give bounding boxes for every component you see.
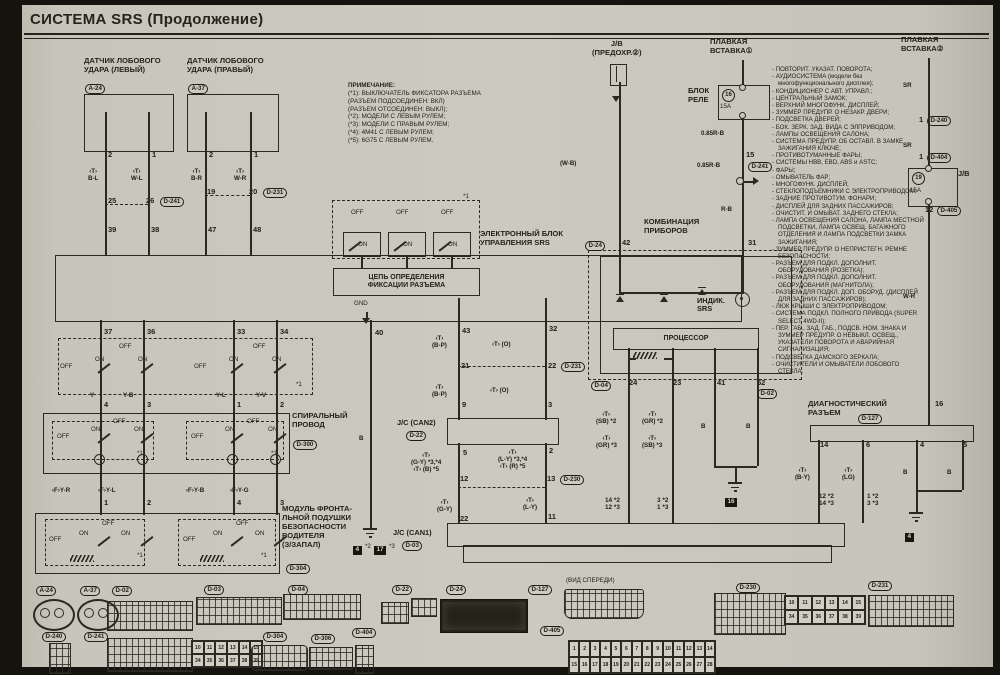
pin-cell: 11	[673, 641, 683, 657]
pin-cell: 17	[590, 657, 600, 673]
connector-pictogram-d230-pins: 101112131415343536373839	[784, 595, 866, 625]
pin-number: 1 *2 3 *3	[867, 493, 878, 508]
list-item: (*2): МОДЕЛИ С ЛЕВЫМ РУЛЕМ;	[348, 113, 481, 121]
pin-number: 33	[237, 328, 245, 337]
pin-cell: 10	[785, 596, 798, 610]
wire-code: ‹T› B-L	[88, 168, 98, 182]
connector-ref: A-24	[36, 586, 56, 596]
note-text: 15A	[910, 187, 921, 194]
pin-number: 22	[460, 515, 468, 524]
wire-code: SR	[903, 82, 912, 89]
pin-number: 15	[746, 151, 754, 160]
connector-pictogram-d404	[355, 645, 374, 674]
lock-detect-circuit-box: ЦЕПЬ ОПРЕДЕЛЕНИЯ ФИКСАЦИИ РАЗЪЕМА	[333, 268, 480, 296]
connector-ref: D-22	[392, 585, 412, 595]
label-junction-block-fuse: J/B (ПРЕДОХР.②)	[592, 40, 642, 58]
pin-number: 4	[104, 401, 108, 410]
pin-number: 4	[237, 499, 241, 508]
connector-ref: D-304	[286, 564, 310, 574]
connector-ref: D-404	[352, 628, 376, 638]
wire-segment	[714, 348, 716, 466]
page-margin-left	[0, 0, 22, 675]
pin-number: 1	[152, 151, 156, 160]
component-sub-label: J/B	[958, 170, 970, 178]
wire-segment	[458, 320, 460, 420]
connector-pictogram-d22b	[411, 598, 437, 617]
wire-segment	[672, 348, 674, 523]
list-item: (*5): 6G75 С ЛЕВЫМ РУЛЕМ.	[348, 137, 481, 145]
pin-number: 1	[919, 153, 923, 162]
component-sub-label: J/C (CAN1)	[393, 529, 432, 537]
connector-ref: D-240	[927, 116, 951, 126]
sensor-left-box	[84, 94, 174, 152]
pin-cell: 19	[611, 657, 621, 673]
wire-segment	[545, 320, 547, 420]
wire-segment	[744, 181, 753, 183]
connector-pictogram-d230-left	[714, 593, 786, 635]
list-item: ПОВТОРИТ. УКАЗАТ. ПОВОРОТА;	[772, 66, 924, 73]
connector-ref: D-03	[402, 541, 422, 551]
a24-pin	[40, 608, 50, 618]
title-rule-2	[24, 38, 989, 39]
pin-number: 6	[866, 441, 870, 450]
note-text: OFF	[191, 433, 203, 440]
label-front-impact-sensor-right: ДАТЧИК ЛОБОВОГО УДАРА (ПРАВЫЙ)	[187, 57, 264, 75]
wire-segment	[458, 298, 460, 320]
pin-cell: 6	[621, 641, 631, 657]
wire-segment	[735, 466, 737, 482]
pin-cell: 9	[652, 641, 662, 657]
connector-pictogram-d127	[564, 589, 644, 619]
wire-code: ‹T› (LG)	[842, 467, 855, 481]
wire-segment	[928, 205, 930, 425]
pin-cell: 3	[590, 641, 600, 657]
pin-number: 14	[820, 441, 828, 450]
label-combination-meter: КОМБИНАЦИЯ ПРИБОРОВ	[644, 218, 699, 236]
connector-ref: D-02	[112, 586, 132, 596]
title-rule	[24, 33, 989, 35]
pin-cell: 13	[825, 596, 838, 610]
note-text: *1	[261, 552, 267, 559]
wire-segment	[619, 252, 621, 292]
pin-cell: 39	[852, 610, 865, 624]
pin-number: 32	[549, 325, 557, 334]
wire-code: ‹T› (G-Y) *3,*4 ‹T› (B) *5	[411, 452, 441, 473]
wire-segment	[714, 466, 757, 468]
page-title: СИСТЕМА SRS (Продолжение)	[30, 11, 263, 28]
coil-symbol	[227, 454, 238, 465]
connector-ref: D-306	[311, 634, 335, 644]
pin-cell: 11	[204, 641, 216, 654]
note-text: OFF	[60, 363, 72, 370]
ground-symbol	[728, 482, 742, 493]
note-text: OFF	[396, 209, 408, 216]
label-fusible-link-2: ПЛАВКАЯ ВСТАВКА②	[901, 36, 944, 54]
pin-number: 1	[919, 116, 923, 125]
wire-segment	[818, 440, 820, 523]
wire-segment	[406, 255, 408, 268]
connector-ref: D-230	[560, 475, 584, 485]
connector-pictogram-d03	[196, 597, 282, 625]
pin-number: 2	[549, 447, 553, 456]
fuse-contact	[739, 112, 746, 119]
coil-symbol	[137, 454, 148, 465]
fuse-output-arrow	[612, 96, 620, 102]
connector-ref: D-127	[858, 414, 882, 424]
connector-pictogram-d231	[868, 595, 954, 627]
pin-cell: 15	[569, 657, 579, 673]
note-text: OFF	[113, 418, 125, 425]
pin-cell: 24	[663, 657, 673, 673]
wire-code: (W-B)	[560, 160, 576, 167]
connector-ref: D-02	[757, 389, 777, 399]
wire-segment	[742, 60, 744, 85]
connector-ref: D-241	[160, 197, 184, 207]
connector-pictogram-d04	[283, 594, 361, 620]
pin-cell: 16	[579, 657, 589, 673]
connector-pictogram-d306	[309, 647, 353, 670]
note-text: GND	[354, 300, 368, 307]
wire-segment	[143, 320, 145, 515]
pin-number: 42	[622, 239, 630, 248]
pin-number: 36	[147, 328, 155, 337]
wire-code: ‹T› B-R	[191, 168, 202, 182]
pin-number: 2	[280, 401, 284, 410]
gnd-arrow	[362, 318, 370, 324]
jc-can1-box	[447, 523, 845, 547]
wire-code: 0.85R-B	[701, 130, 724, 137]
list-item: ПРОТИВОТУМАННЫЕ ФАРЫ;	[772, 152, 924, 159]
note-text: *1	[296, 381, 302, 388]
pin-number: 12	[460, 475, 468, 484]
wire-code: W-R	[903, 293, 915, 300]
pin-cell: 8	[642, 641, 652, 657]
connector-ref: D-405	[937, 206, 961, 216]
wire-code: B	[903, 469, 907, 476]
pin-cell: 36	[215, 654, 227, 667]
pin-cell: 36	[812, 610, 825, 624]
connector-pictogram-d240	[49, 643, 71, 674]
connector-ref: D-241	[748, 162, 772, 172]
inline-connector-line	[458, 487, 545, 488]
ground-symbol	[363, 528, 377, 539]
wire-code: ‹T› (L-Y) *3,*4 ‹T› (R) *5	[498, 449, 527, 470]
wire-segment	[250, 112, 252, 255]
notes-block: ПРИМЕЧАНИЕ: (*1): ВЫКЛЮЧАТЕЛЬ ФИКСАТОРА …	[348, 82, 481, 145]
wire-segment	[105, 112, 107, 255]
pin-number: 3	[147, 401, 151, 410]
connector-ref: D-231	[868, 581, 892, 591]
connector-ref: D-405	[540, 626, 564, 636]
pin-cell: 12	[812, 596, 825, 610]
connector-ref: D-230	[736, 583, 760, 593]
pin-cell: 38	[838, 610, 851, 624]
connector-ref: D-24	[585, 241, 605, 251]
pin-number: 4	[920, 441, 924, 450]
wire-code: ‹T› (O)	[490, 387, 509, 394]
pin-number: 24	[629, 379, 637, 388]
note-text: OFF	[119, 343, 131, 350]
list-item: ПОДСВЕТКА ДВЕРЕЙ;	[772, 116, 924, 123]
pin-number: 1	[237, 401, 241, 410]
wire-code: ‹T› (GR) *3	[596, 435, 617, 449]
fuse-number: 16	[722, 89, 735, 102]
coil-symbol	[270, 454, 281, 465]
connector-ref: D-24	[446, 585, 466, 595]
pin-number: 9	[462, 401, 466, 410]
note-text: OFF	[194, 363, 206, 370]
diode-symbol	[660, 296, 668, 302]
list-item: ФАРЫ;	[772, 167, 924, 174]
resistor-symbol	[70, 555, 94, 562]
pin-number: 2	[209, 151, 213, 160]
note-text: *1	[137, 552, 143, 559]
pin-cell: 35	[798, 610, 811, 624]
note-text: ON	[213, 530, 222, 537]
note-text: OFF	[49, 536, 61, 543]
pin-cell: 38	[239, 654, 251, 667]
label-spiral-cable: СПИРАЛЬНЫЙ ПРОВОД	[292, 412, 348, 430]
connector-ref: D-300	[293, 440, 317, 450]
wire-segment	[458, 443, 460, 523]
connector-ref: D-04	[591, 381, 611, 391]
notes-lines: (*1): ВЫКЛЮЧАТЕЛЬ ФИКСАТОРА РАЗЪЕМА (РАЗ…	[348, 90, 481, 145]
list-item: ЦЕНТРАЛЬНЫЙ ЗАМОК;	[772, 95, 924, 102]
wire-code: ‹F›Y-R	[52, 487, 70, 494]
connector-ref: A-37	[188, 84, 208, 94]
list-item: ДИСПЛЕЙ ДЛЯ ЗАДНИХ ПАССАЖИРОВ;	[772, 203, 924, 210]
pin-number: 40	[375, 329, 383, 338]
list-item: ЗАДНИЕ ПРОТИВОТУМ. ФОНАРИ;	[772, 195, 924, 202]
note-text: OFF	[236, 520, 248, 527]
pin-cell: 18	[600, 657, 610, 673]
wire-code: Y-L	[216, 392, 226, 399]
note-text: OFF	[351, 209, 363, 216]
connector-ref: A-24	[85, 84, 105, 94]
list-item: КОНДИЦИОНЕР С АВТ. УПРАВЛ.;	[772, 88, 924, 95]
label-driver-airbag-module: МОДУЛЬ ФРОНТА- ЛЬНОЙ ПОДУШКИ БЕЗОПАСНОСТ…	[282, 505, 352, 550]
a37-pin	[84, 608, 94, 618]
list-item: БОК. ЗЕРК. ЗАД. ВИДА С ЭЛПРИВОДОМ;	[772, 124, 924, 131]
wire-code: B	[746, 423, 750, 430]
list-item: АУДИОСИСТЕМА (модели без многофункционал…	[772, 73, 924, 87]
list-item: СИСТЕМЫ HBB, EBD, ABS и ASTC;	[772, 159, 924, 166]
inline-connector-line	[105, 204, 148, 205]
wire-code: ‹T› W-L	[131, 168, 143, 182]
pin-number: 3	[280, 499, 284, 508]
wire-segment	[545, 298, 547, 320]
junction-node	[736, 177, 744, 185]
pin-cell: 12	[684, 641, 694, 657]
pin-number: 16	[935, 400, 943, 409]
notes-heading: ПРИМЕЧАНИЕ:	[348, 82, 481, 90]
pin-cell: 34	[785, 610, 798, 624]
pin-number: 5	[463, 449, 467, 458]
note-text: *2	[365, 543, 371, 550]
connector-ref: D-231	[263, 188, 287, 198]
wire-segment	[862, 440, 864, 523]
list-item: ОМЫВАТЕЛЬ ФАР;	[772, 174, 924, 181]
wire-segment	[916, 490, 962, 492]
note-text: ON	[79, 530, 88, 537]
label-front-impact-sensor-left: ДАТЧИК ЛОБОВОГО УДАРА (ЛЕВЫЙ)	[84, 57, 161, 75]
pin-cell: 27	[694, 657, 704, 673]
pin-number: 3 *2 1 *3	[657, 497, 668, 512]
note-text: OFF	[441, 209, 453, 216]
connector-pictogram-d304	[251, 645, 308, 671]
pin-cell: 22	[642, 657, 652, 673]
wire-segment	[451, 255, 453, 268]
pin-number: 39	[108, 226, 116, 235]
connector-ref: D-04	[288, 585, 308, 595]
list-item: (*4): 4M41 С ЛЕВЫМ РУЛЕМ;	[348, 129, 481, 137]
wire-segment	[148, 112, 150, 255]
wire-code: ‹T› (SB) *2	[596, 411, 616, 425]
wire-segment	[742, 252, 744, 294]
wire-code: B	[359, 435, 363, 442]
label-fusible-link-1: ПЛАВКАЯ ВСТАВКА①	[710, 38, 753, 56]
note-text: ON	[91, 426, 100, 433]
wire-code: ‹T› (SB) *3	[642, 435, 662, 449]
wire-segment	[962, 440, 964, 490]
pin-number: 41	[717, 379, 725, 388]
connector-ref: D-304	[263, 632, 287, 642]
note-text: *3	[389, 543, 395, 550]
pin-cell: 13	[694, 641, 704, 657]
connector-ref: D-22	[406, 431, 426, 441]
pin-cell: 15	[852, 596, 865, 610]
pin-cell: 35	[204, 654, 216, 667]
pin-cell: 2	[579, 641, 589, 657]
note-text: *1	[463, 193, 469, 200]
wire-code: SR	[903, 142, 912, 149]
pin-number: 3	[548, 401, 552, 410]
note-text: ON	[121, 530, 130, 537]
list-item: (РАЗЪЕМ ПОДСОЕДИНЕН: ВКЛ)	[348, 98, 481, 106]
list-item: СТЕКЛОПОДЪЕМНИКИ С ЭЛЕКТРОПРИВОДОМ;	[772, 188, 924, 195]
wire-segment	[100, 320, 102, 515]
pin-number: 38	[151, 226, 159, 235]
ground-ref: 4	[353, 546, 362, 555]
list-item: (*1): ВЫКЛЮЧАТЕЛЬ ФИКСАТОРА РАЗЪЕМА	[348, 90, 481, 98]
label-srs-ecu: ЭЛЕКТРОННЫЙ БЛОК УПРАВЛЕНИЯ SRS	[480, 230, 563, 248]
wire-segment	[928, 58, 930, 168]
connector-ref: A-37	[80, 586, 100, 596]
note-text: OFF	[253, 343, 265, 350]
pin-cell: 14	[239, 641, 251, 654]
wire-segment	[205, 112, 207, 255]
connector-ref: D-231	[561, 362, 585, 372]
wire-code: Y-V	[256, 392, 266, 399]
pin-number: 47	[208, 226, 216, 235]
wire-code: ‹F›Y-B	[186, 487, 204, 494]
connector-ref: D-240	[42, 632, 66, 642]
wire-segment	[757, 348, 759, 466]
note-text: OFF	[247, 418, 259, 425]
inline-connector-line	[458, 366, 545, 367]
note-text: OFF	[57, 433, 69, 440]
pin-cell: 7	[632, 641, 642, 657]
connector-ref: D-241	[84, 632, 108, 642]
ground-ref: 16	[725, 498, 737, 507]
list-item: ЛАМПА ОСВЕЩЕНИЯ САЛОНА, ЛАМПА МЕСТНОЙ ПО…	[772, 217, 924, 246]
lower-lock-switch-dashed-box	[58, 338, 313, 395]
component-sub-label: ИНДИК. SRS	[697, 297, 725, 314]
connector-pictogram-d24	[440, 599, 528, 633]
pin-number: 1	[254, 151, 258, 160]
wire-code: R-B	[721, 206, 732, 213]
wire-code: ‹T› (O)	[492, 341, 511, 348]
note-text: OFF	[183, 536, 195, 543]
fuse-number: 19	[912, 172, 925, 185]
pin-number: 13	[547, 475, 555, 484]
wire-code: ‹T› (B-Y)	[795, 467, 810, 481]
coil-symbol	[94, 454, 105, 465]
note-text: ON	[134, 426, 143, 433]
jc-can1-box-2	[463, 545, 832, 563]
wire-segment	[619, 292, 742, 294]
processor-box: ПРОЦЕССОР	[613, 328, 759, 350]
pin-cell: 25	[673, 657, 683, 673]
pin-cell: 12	[215, 641, 227, 654]
wire-code: ‹T› (L-Y)	[523, 497, 537, 511]
pin-cell: 21	[632, 657, 642, 673]
wire-segment	[742, 118, 744, 252]
pin-cell: 10	[192, 641, 204, 654]
pin-cell: 5	[611, 641, 621, 657]
pin-cell: 10	[663, 641, 673, 657]
note-text: ON	[255, 530, 264, 537]
diagnostic-connector-box	[810, 425, 974, 442]
pin-number: 2	[108, 151, 112, 160]
connector-pictogram-d02	[107, 601, 193, 631]
pin-number: 14 *2 12 *3	[605, 497, 620, 512]
jc-can2-box	[447, 418, 559, 445]
wire-segment	[370, 320, 372, 530]
wire-segment	[233, 320, 235, 515]
diode-symbol	[698, 289, 706, 295]
pin-cell: 4	[600, 641, 610, 657]
label-relay-block: БЛОК РЕЛЕ	[688, 87, 709, 105]
wire-segment	[545, 443, 547, 523]
wire-segment	[628, 348, 630, 523]
connector-pictogram-d405: 1234567891011121314151617181920212223242…	[568, 640, 716, 674]
pin-number: 23	[673, 379, 681, 388]
pin-number: 11	[548, 513, 556, 522]
wire-code: ‹T› (G-Y)	[437, 499, 452, 513]
list-item: (*3): МОДЕЛИ С ПРАВЫМ РУЛЕМ;	[348, 121, 481, 129]
pin-cell: 14	[705, 641, 715, 657]
wire-code: Y	[90, 392, 94, 399]
ground-ref: 4	[905, 533, 914, 542]
wire-code: ‹T› (GR) *2	[642, 411, 663, 425]
pin-cell: 37	[227, 654, 239, 667]
a24-pin	[54, 608, 64, 618]
list-item: ОЧИСТИТ. И ОМЫВАТ. ЗАДНЕГО СТЕКЛА;	[772, 210, 924, 217]
ground-ref: 17	[374, 546, 386, 555]
arrow-to-load-list	[753, 177, 759, 185]
component-sub-label: J/C (CAN2)	[397, 419, 436, 427]
diode-symbol	[616, 296, 624, 302]
wire-code: 0.85R-B	[697, 162, 720, 169]
pin-number: 37	[104, 328, 112, 337]
pin-cell: 34	[192, 654, 204, 667]
note-text: (ВИД СПЕРЕДИ)	[566, 577, 615, 584]
connector-pictogram-d241-left	[107, 638, 193, 672]
wire-segment	[276, 320, 278, 515]
wire-code: ‹T› (B-P)	[432, 384, 447, 398]
fuse-contact	[925, 198, 932, 205]
